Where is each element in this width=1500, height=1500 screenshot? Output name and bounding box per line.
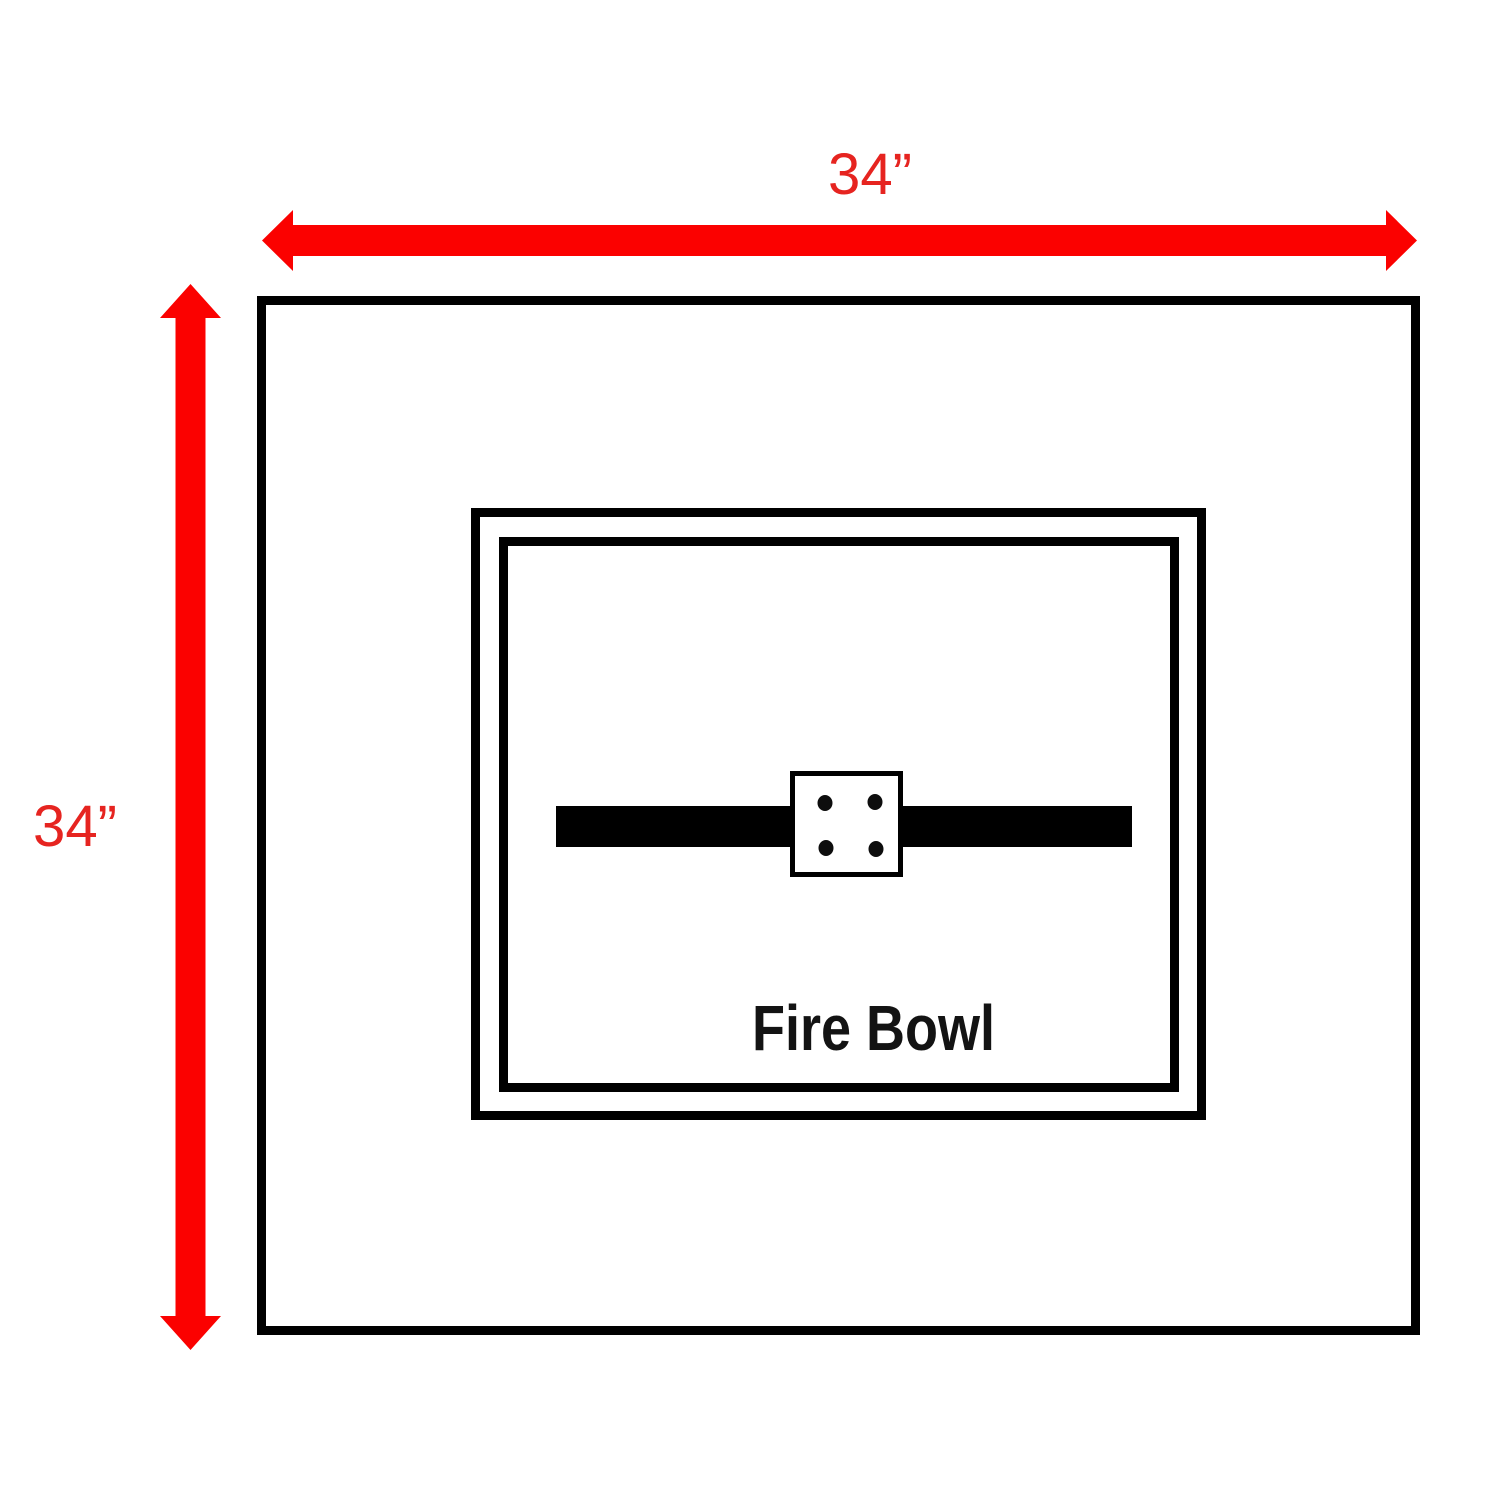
svg-text:34”: 34”: [33, 794, 117, 859]
svg-text:Fire Bowl: Fire Bowl: [752, 992, 995, 1064]
svg-text:34”: 34”: [828, 142, 912, 207]
